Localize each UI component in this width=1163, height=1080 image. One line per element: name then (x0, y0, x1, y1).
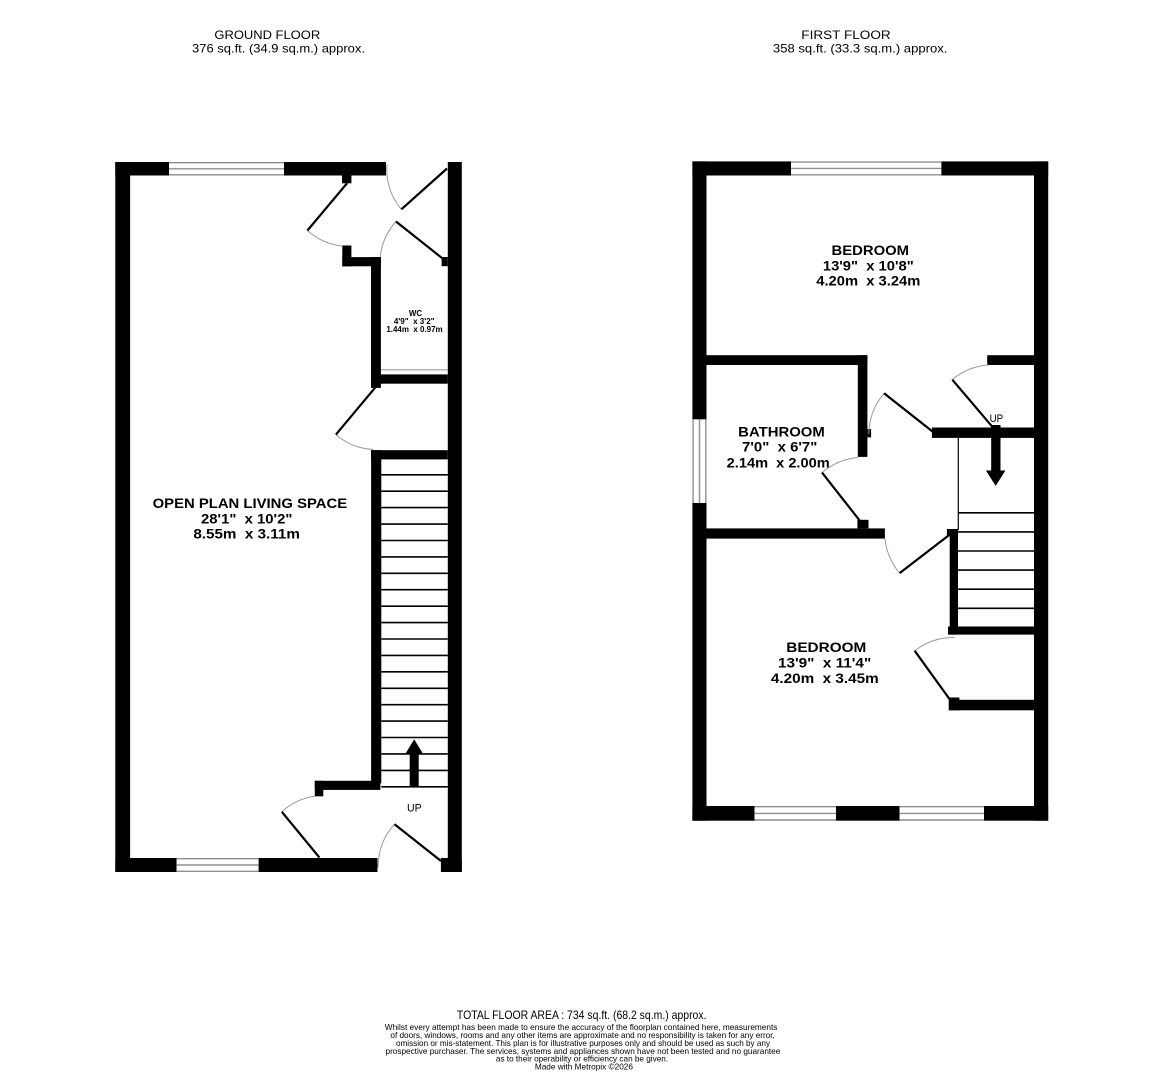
svg-text:Made with Metropix ©2026: Made with Metropix ©2026 (535, 1062, 633, 1072)
svg-text:28'1" x 10'2": 28'1" x 10'2" (201, 511, 292, 527)
svg-text:4.20m x 3.24m: 4.20m x 3.24m (816, 273, 920, 289)
svg-text:TOTAL FLOOR AREA : 734 sq.ft.: TOTAL FLOOR AREA : 734 sq.ft. (68.2 sq.m… (457, 1008, 707, 1022)
svg-text:1.44m x 0.97m: 1.44m x 0.97m (386, 325, 442, 334)
svg-text:13'9" x 11'4": 13'9" x 11'4" (778, 654, 871, 670)
svg-text:UP: UP (990, 413, 1004, 425)
svg-text:BATHROOM: BATHROOM (738, 423, 825, 439)
svg-text:7'0" x 6'7": 7'0" x 6'7" (742, 439, 817, 455)
svg-text:UP: UP (407, 802, 422, 814)
svg-text:4.20m x 3.45m: 4.20m x 3.45m (771, 670, 879, 686)
svg-text:8.55m x 3.11m: 8.55m x 3.11m (193, 526, 300, 542)
svg-text:OPEN PLAN LIVING SPACE: OPEN PLAN LIVING SPACE (153, 495, 348, 511)
svg-text:BEDROOM: BEDROOM (832, 242, 910, 258)
svg-text:GROUND FLOOR: GROUND FLOOR (214, 28, 320, 42)
svg-text:376 sq.ft. (34.9 sq.m.) approx: 376 sq.ft. (34.9 sq.m.) approx. (192, 41, 365, 55)
svg-text:BEDROOM: BEDROOM (786, 639, 866, 655)
svg-text:358 sq.ft. (33.3 sq.m.) approx: 358 sq.ft. (33.3 sq.m.) approx. (773, 41, 948, 55)
svg-text:FIRST FLOOR: FIRST FLOOR (801, 28, 891, 42)
svg-text:13'9" x 10'8": 13'9" x 10'8" (823, 258, 914, 274)
svg-text:2.14m x 2.00m: 2.14m x 2.00m (727, 454, 830, 470)
